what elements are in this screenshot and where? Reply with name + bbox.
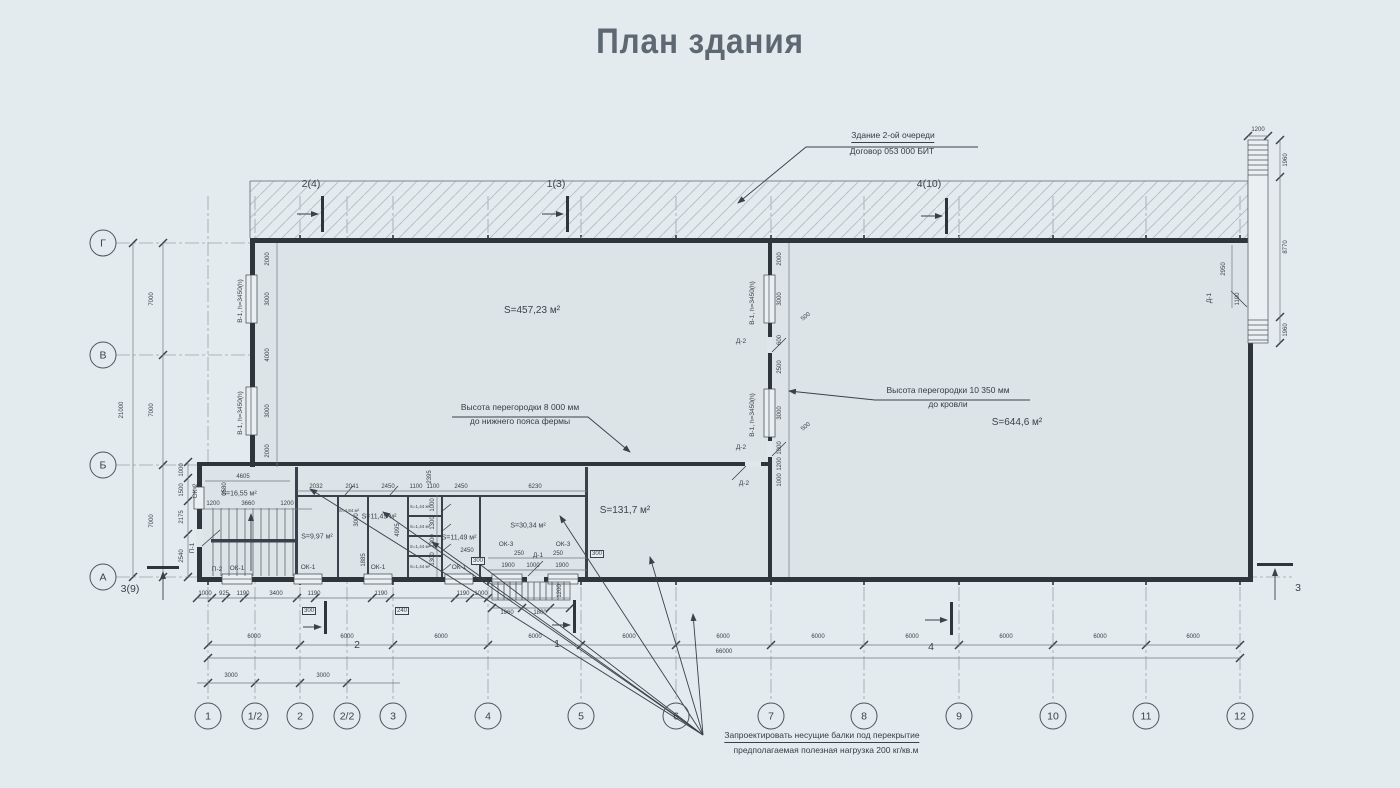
grid-bubble: 11 [1133,703,1160,730]
dim-label: 1000 [474,591,487,597]
section-label: 3(9) [121,584,140,595]
dim-label: 300 [590,550,604,558]
element-tag: Д-1 [1207,293,1214,303]
dim-label: 3000 [265,404,271,417]
note-partition-left-line2: до нижнего пояса фермы [470,417,570,427]
dim-label: 1960 [1283,323,1289,336]
dim-label: 3000 [777,292,783,305]
grid-bubble: 2 [287,703,314,730]
dim-label: 3000 [265,292,271,305]
dim-label: 6230 [528,484,541,490]
element-tag: Д-1 [533,553,543,560]
phase2-callout-line2: Договор 053 000 БИТ [850,147,934,157]
room-area-label: S=1,44 м² [410,565,430,570]
plan-drawing [0,0,1400,788]
dim-label: 1100 [410,484,423,490]
dim-label: 3000 [777,406,783,419]
dim-label: 300 [302,607,316,615]
dim-label: 3000 [354,513,360,526]
element-tag: В-1, h=3450(h) [750,281,757,325]
room-area-label: S=9,97 м² [301,534,332,541]
dim-label: 6000 [811,634,824,640]
grid-bubble: 8 [851,703,878,730]
dim-label: 4605 [236,474,249,480]
dim-label: 1000 [777,473,783,486]
element-tag: П-2 [212,567,222,574]
room-area-label: S=1,44 м² [410,525,430,530]
element-tag: Д-2 [739,481,749,488]
dim-label: 2450 [381,484,394,490]
dim-label: 250 [553,551,563,557]
dim-label: 2041 [345,484,358,490]
dim-label: 21000 [119,402,125,419]
element-tag: Д-2 [736,445,746,452]
dim-label: 2175 [179,510,185,523]
note-partition-right-line1: Высота перегородки 10 350 мм [886,386,1009,396]
dim-label: 2032 [309,484,322,490]
dim-label: 300 [471,557,485,565]
dim-label: 1100 [427,484,440,490]
grid-bubble: Г [90,230,117,257]
dim-label: 1190 [375,591,388,597]
element-tag: ОК-2 [193,484,200,499]
phase2-callout-line1: Здание 2-ой очереди [851,131,934,143]
dim-label: 66000 [716,649,733,655]
section-label: 3 [1295,583,1301,594]
floor-plan: План здания [0,0,1400,788]
phase2-hatch-band [250,181,1248,238]
dim-label: 2950 [1221,262,1227,275]
dim-label: 8770 [1283,240,1289,253]
grid-bubble: 1 [195,703,222,730]
dim-label: 7000 [149,403,155,416]
grid-bubble: 9 [946,703,973,730]
room-area-label: S=131,7 м² [600,506,651,516]
dim-label: 1100 [1235,293,1241,306]
element-tag: ОК-3 [556,542,571,549]
element-tag: ОК-3 [499,542,514,549]
dim-label: 1300 [430,516,436,529]
dim-label: 1190 [457,591,470,597]
dim-label: 1000 [777,441,783,454]
dim-label: 6000 [622,634,635,640]
section-label: 1 [554,639,560,650]
element-tag: ОК-1 [230,566,245,573]
dim-label: 2000 [265,444,271,457]
dim-label: 7000 [149,292,155,305]
dim-label: 2450 [460,548,473,554]
dim-label: 1800 [533,610,546,616]
grid-bubble: 12 [1227,703,1254,730]
dim-label: 1900 [501,563,514,569]
note-beams-line1: Запроектировать несущие балки под перекр… [724,731,919,743]
grid-bubble: А [90,564,117,591]
dim-label: 1000 [179,463,185,476]
section-label: 4 [928,642,934,653]
dim-label: 1200 [557,584,563,597]
room-area-label: S=11,49 м² [362,514,397,521]
grid-bubble: 6 [663,703,690,730]
grid-bubble: 4 [475,703,502,730]
dim-label: 6000 [528,634,541,640]
room-area-label: S=1,44 м² [410,505,430,510]
dim-label: 6000 [716,634,729,640]
room-area-label: S=457,23 м² [504,306,560,316]
grid-bubble: 5 [568,703,595,730]
dim-label: 1200 [777,457,783,470]
note-beams-line2: предполагаемая полезная нагрузка 200 кг/… [734,746,919,756]
dim-label: 6000 [999,634,1012,640]
dim-label: 4000 [265,348,271,361]
dim-label: 925 [219,591,229,597]
element-tag: В-1, h=3450(h) [238,391,245,435]
dim-label: 6000 [434,634,447,640]
dim-label: 3400 [269,591,282,597]
exterior-ramp [1248,140,1268,343]
dim-label: 3660 [241,501,254,507]
dim-label: 1200 [1251,127,1264,133]
dim-label: 1500 [179,483,185,496]
grid-bubble: Б [90,452,117,479]
element-tag: ОК-1 [452,565,467,572]
dim-label: 2000 [265,252,271,265]
dim-label: 6000 [1093,634,1106,640]
dim-label: 2395 [427,470,433,483]
element-tag: В-1, h=3450(h) [238,279,245,323]
section-label: 2(4) [302,179,321,190]
dim-label: 2000 [777,252,783,265]
dim-label: 1960 [500,610,513,616]
grid-bubble: 1/2 [242,703,269,730]
dim-label: 7000 [149,514,155,527]
dim-label: 6000 [905,634,918,640]
grid-bubble: 3 [380,703,407,730]
dim-label: 3000 [316,673,329,679]
dim-label: 6000 [1186,634,1199,640]
grid-bubble: 10 [1040,703,1067,730]
dim-label: 1000 [198,591,211,597]
room-area-label: S=1,44 м² [410,545,430,550]
dim-label: 1190 [237,591,250,597]
room-area-label: S=30,34 м² [510,523,545,530]
dim-label: 2500 [777,360,783,373]
dim-label: 1000 [526,563,539,569]
grid-bubble: 2/2 [334,703,361,730]
room-area-label: S=16,55 м² [221,491,256,498]
room-area-label: S=4,84 м² [339,509,359,514]
room-area-label: S=644,6 м² [992,418,1043,428]
grid-bubble: 7 [758,703,785,730]
element-tag: Д-2 [736,339,746,346]
section-label: 1(3) [547,179,566,190]
dim-label: 1900 [555,563,568,569]
dim-label: 1000 [430,498,436,511]
note-partition-right-line2: до кровли [928,400,967,410]
dim-label: 1300 [430,534,436,547]
dim-label: 1200 [206,501,219,507]
dim-label: 1300 [430,552,436,565]
dim-label: 3000 [224,673,237,679]
element-tag: В-1, h=3450(h) [750,393,757,437]
dim-label: 250 [514,551,524,557]
dim-label: 4995 [395,523,401,536]
dim-label: 1190 [308,591,321,597]
element-tag: ОК-1 [301,565,316,572]
dim-label: 2450 [454,484,467,490]
element-tag: П-1 [190,543,197,553]
section-label: 2 [354,640,360,651]
dim-label: 1885 [361,553,367,566]
dim-label: 600 [777,335,783,345]
dim-label: 1960 [1283,153,1289,166]
dim-label: 6000 [247,634,260,640]
grid-bubble: В [90,342,117,369]
dim-label: 2540 [179,549,185,562]
section-label: 4(10) [917,179,942,190]
dim-label: 1200 [280,501,293,507]
room-area-label: S=11,49 м² [442,535,477,542]
dim-label: 240 [395,607,409,615]
dim-label: 6000 [340,634,353,640]
element-tag: ОК-1 [371,565,386,572]
note-partition-left-line1: Высота перегородки 8 000 мм [461,403,579,413]
